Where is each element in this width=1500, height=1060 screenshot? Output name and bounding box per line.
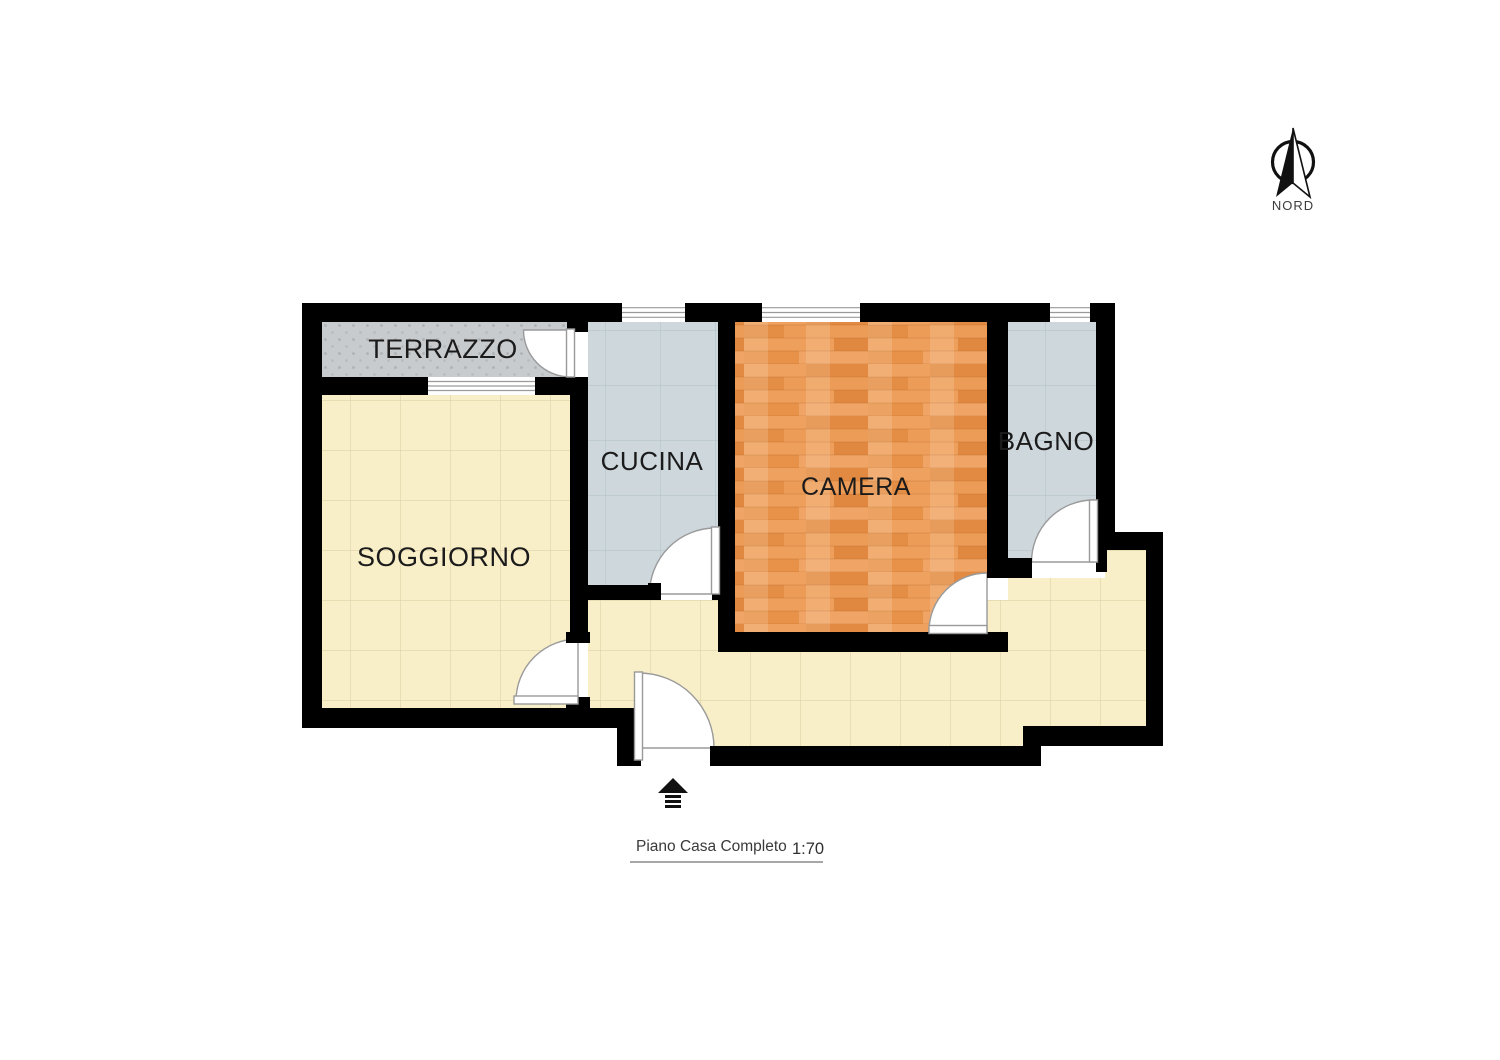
camera-door-leaf bbox=[929, 626, 987, 634]
room-label-terrazzo: TERRAZZO bbox=[368, 334, 518, 364]
floor-plan-drawing: TERRAZZO SOGGIORNO CUCINA CAMERA BAGNO N… bbox=[0, 0, 1500, 1060]
soggiorno-terrazzo-window bbox=[428, 377, 535, 395]
compass-label: NORD bbox=[1272, 198, 1314, 213]
soggiorno-door-leaf bbox=[514, 696, 578, 704]
plan-title: Piano Casa Completo bbox=[636, 838, 787, 855]
cucina-door-leaf bbox=[712, 527, 720, 594]
floor-plan-page: TERRAZZO SOGGIORNO CUCINA CAMERA BAGNO N… bbox=[0, 0, 1500, 1060]
room-label-camera: CAMERA bbox=[801, 473, 911, 501]
room-label-soggiorno: SOGGIORNO bbox=[357, 542, 531, 572]
camera-window bbox=[762, 303, 860, 322]
room-label-bagno: BAGNO bbox=[998, 426, 1094, 456]
bagno-window bbox=[1050, 303, 1090, 322]
bagno-door-leaf bbox=[1090, 500, 1098, 562]
plan-scale: 1:70 bbox=[792, 840, 824, 858]
entrance-door-leaf bbox=[635, 672, 643, 760]
cucina-window bbox=[622, 303, 685, 322]
room-label-cucina: CUCINA bbox=[601, 446, 704, 476]
terrazzo-door-leaf bbox=[567, 329, 575, 377]
